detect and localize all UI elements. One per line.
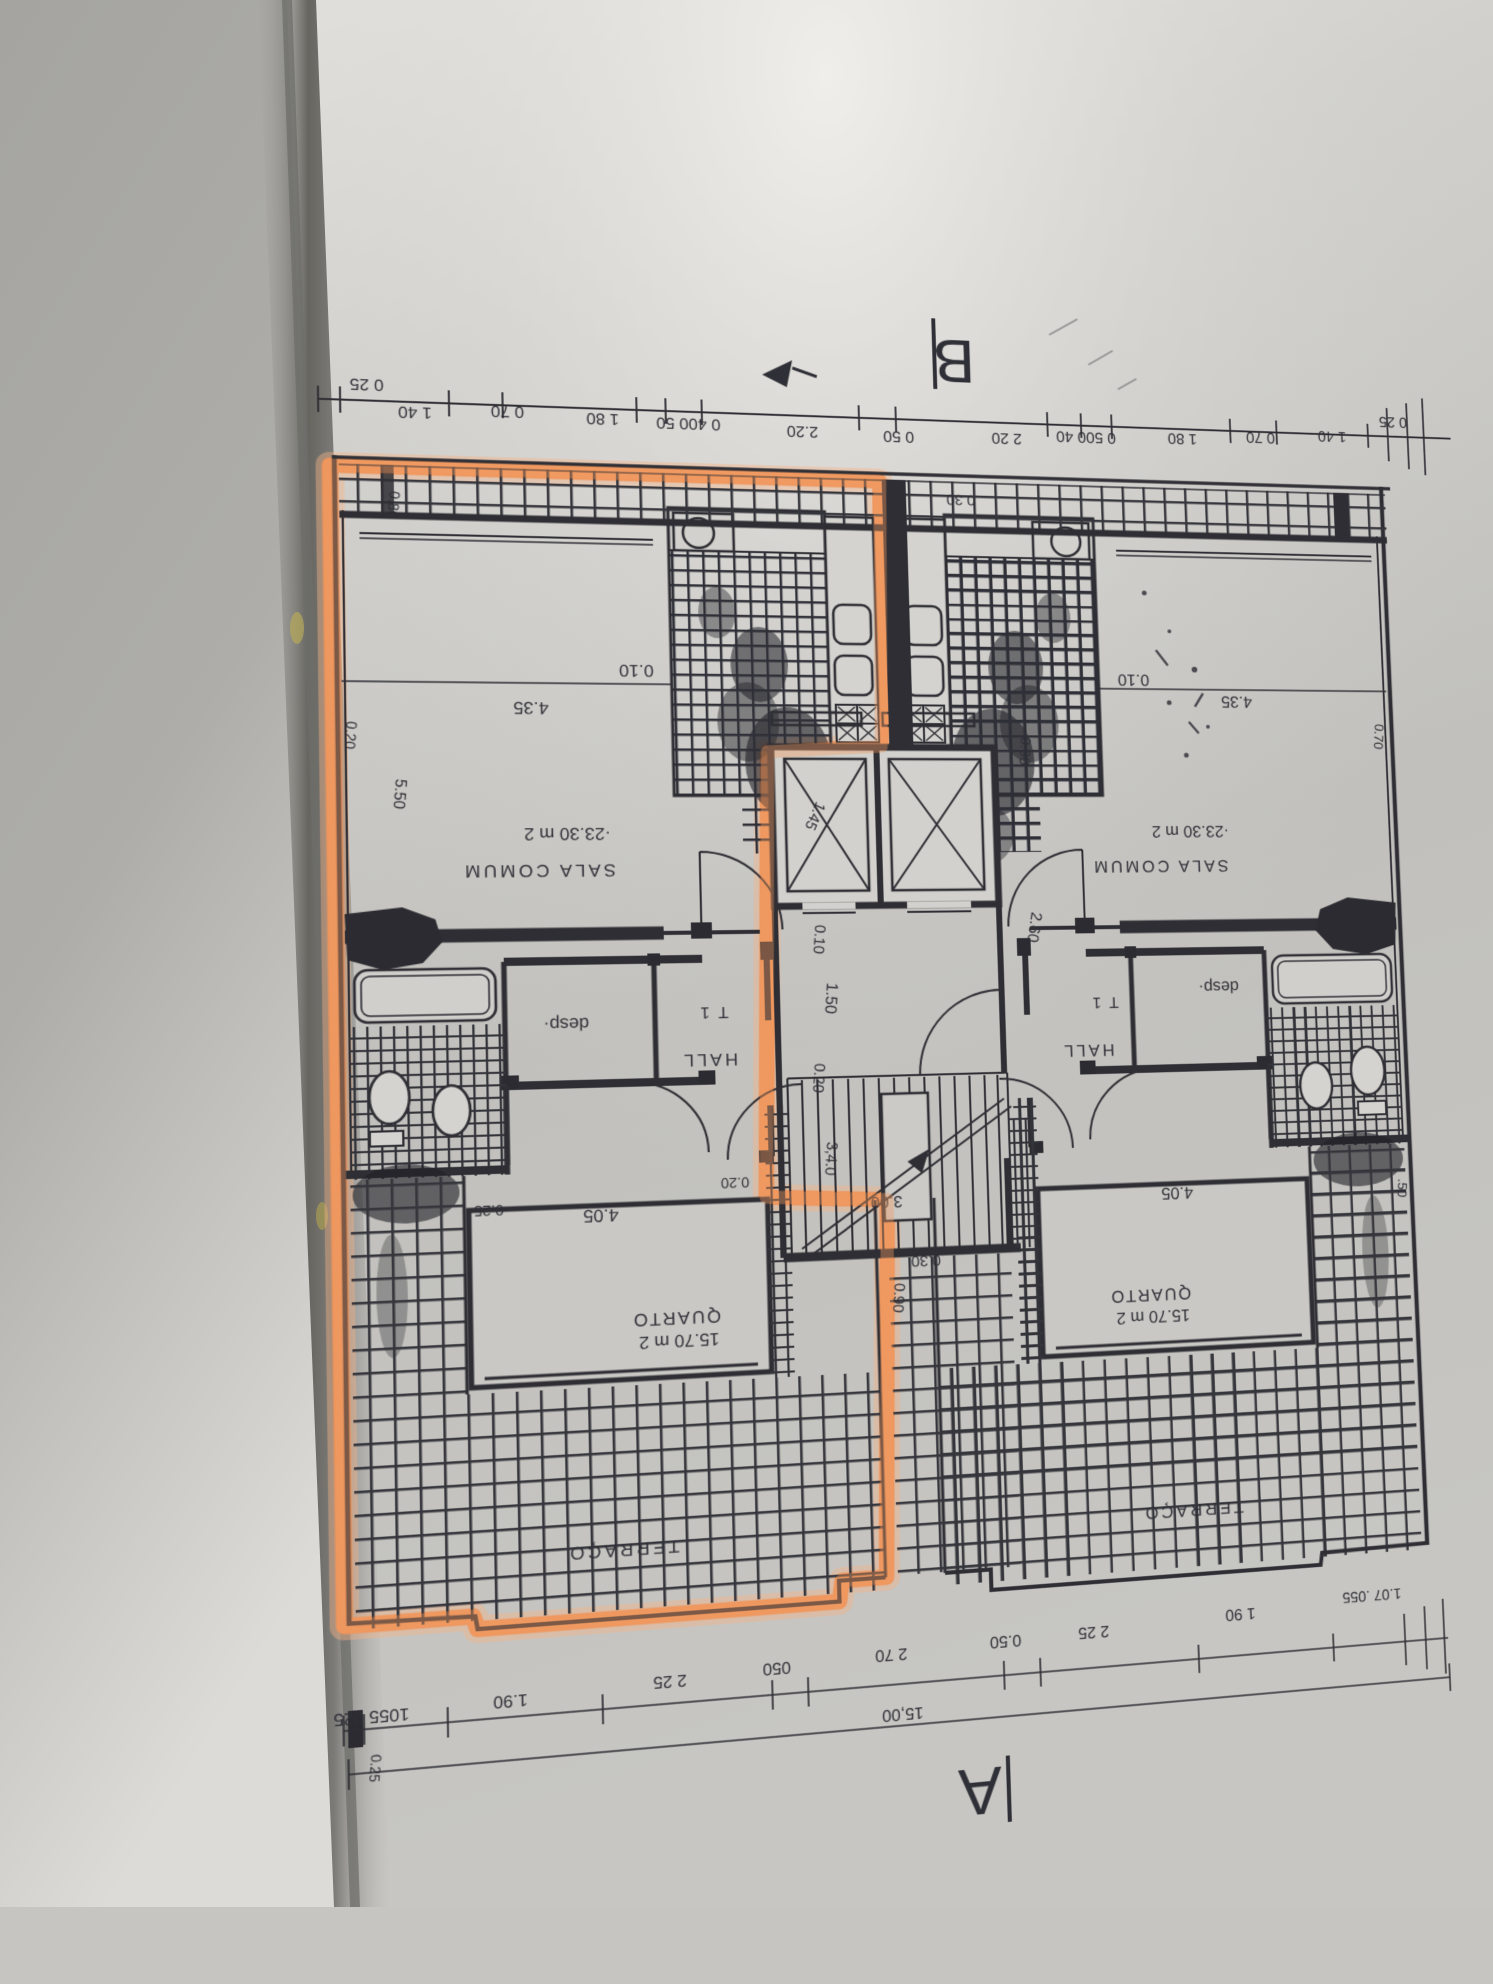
svg-text:4.05: 4.05 (583, 1205, 619, 1226)
svg-text:0.30: 0.30 (946, 491, 975, 508)
svg-text:0.90: 0.90 (1016, 736, 1034, 766)
svg-text:0.30: 0.30 (911, 1251, 941, 1269)
svg-text:SALA COMUM: SALA COMUM (462, 861, 616, 881)
svg-text:0.20: 0.20 (340, 720, 360, 750)
svg-text:A: A (957, 1752, 1003, 1831)
svg-text:1.07 .055: 1.07 .055 (1342, 1585, 1402, 1606)
svg-text:0.10: 0.10 (1117, 671, 1149, 689)
svg-text:·23.30 m 2: ·23.30 m 2 (1152, 822, 1230, 840)
svg-text:1 40: 1 40 (398, 403, 432, 422)
svg-text:2 20: 2 20 (991, 429, 1022, 447)
svg-text:4.35: 4.35 (513, 698, 549, 717)
svg-text:·23.30 m 2: ·23.30 m 2 (524, 824, 611, 843)
svg-text:0 70: 0 70 (491, 402, 525, 421)
svg-text:.50: .50 (1394, 1178, 1409, 1197)
svg-text:0 25: 0 25 (1379, 413, 1408, 430)
svg-text:2 25: 2 25 (1078, 1622, 1110, 1643)
svg-text:QUARTO: QUARTO (1109, 1284, 1191, 1307)
svg-text:desp·: desp· (1198, 978, 1239, 997)
svg-text:HALL: HALL (681, 1050, 739, 1070)
svg-text:0.25: 0.25 (474, 1201, 504, 1219)
svg-text:3,4.0: 3,4.0 (821, 1141, 840, 1176)
svg-text:0.20: 0.20 (721, 1174, 750, 1191)
svg-text:0 50: 0 50 (883, 428, 914, 446)
svg-text:T 1: T 1 (1090, 994, 1119, 1012)
svg-text:2 25: 2 25 (653, 1671, 687, 1693)
svg-text:15.70 m 2: 15.70 m 2 (1116, 1306, 1190, 1328)
svg-text:SALA COMUM: SALA COMUM (1091, 857, 1229, 876)
svg-text:2.20: 2.20 (787, 422, 819, 440)
svg-text:0.10: 0.10 (810, 924, 829, 954)
svg-text:15.70 m 2: 15.70 m 2 (639, 1329, 720, 1353)
svg-text:0 500 40: 0 500 40 (1056, 428, 1116, 447)
svg-text:1.50: 1.50 (821, 982, 841, 1014)
svg-text:0 400 50: 0 400 50 (656, 414, 721, 434)
svg-text:2.60: 2.60 (1024, 911, 1046, 944)
svg-text:0.20: 0.20 (809, 1063, 828, 1093)
svg-text:0.10: 0.10 (619, 661, 654, 680)
svg-text:0 70: 0 70 (1246, 429, 1275, 447)
svg-text:0.80: 0.80 (383, 490, 403, 519)
svg-text:B: B (932, 326, 976, 396)
svg-text:15,00: 15,00 (882, 1703, 924, 1725)
svg-text:HALL: HALL (1061, 1041, 1115, 1061)
svg-text:1 80: 1 80 (1167, 430, 1197, 448)
svg-text:1 80: 1 80 (586, 409, 619, 428)
svg-text:0.25: 0.25 (366, 1754, 385, 1782)
svg-text:0 25: 0 25 (349, 375, 383, 394)
svg-text:2 70: 2 70 (875, 1644, 908, 1665)
svg-text:1.90: 1.90 (493, 1690, 528, 1712)
svg-text:1 40: 1 40 (1317, 428, 1346, 445)
svg-text:4.05: 4.05 (1161, 1183, 1194, 1203)
svg-text:5.50: 5.50 (389, 778, 410, 810)
svg-text:4.35: 4.35 (1221, 693, 1253, 711)
svg-text:T 1: T 1 (698, 1003, 729, 1022)
svg-text:0.50: 0.50 (990, 1631, 1022, 1652)
svg-text:0.70: 0.70 (1370, 723, 1386, 750)
svg-text:050: 050 (762, 1658, 791, 1679)
svg-text:desp·: desp· (543, 1014, 589, 1034)
svg-text:1 90: 1 90 (1225, 1604, 1256, 1624)
